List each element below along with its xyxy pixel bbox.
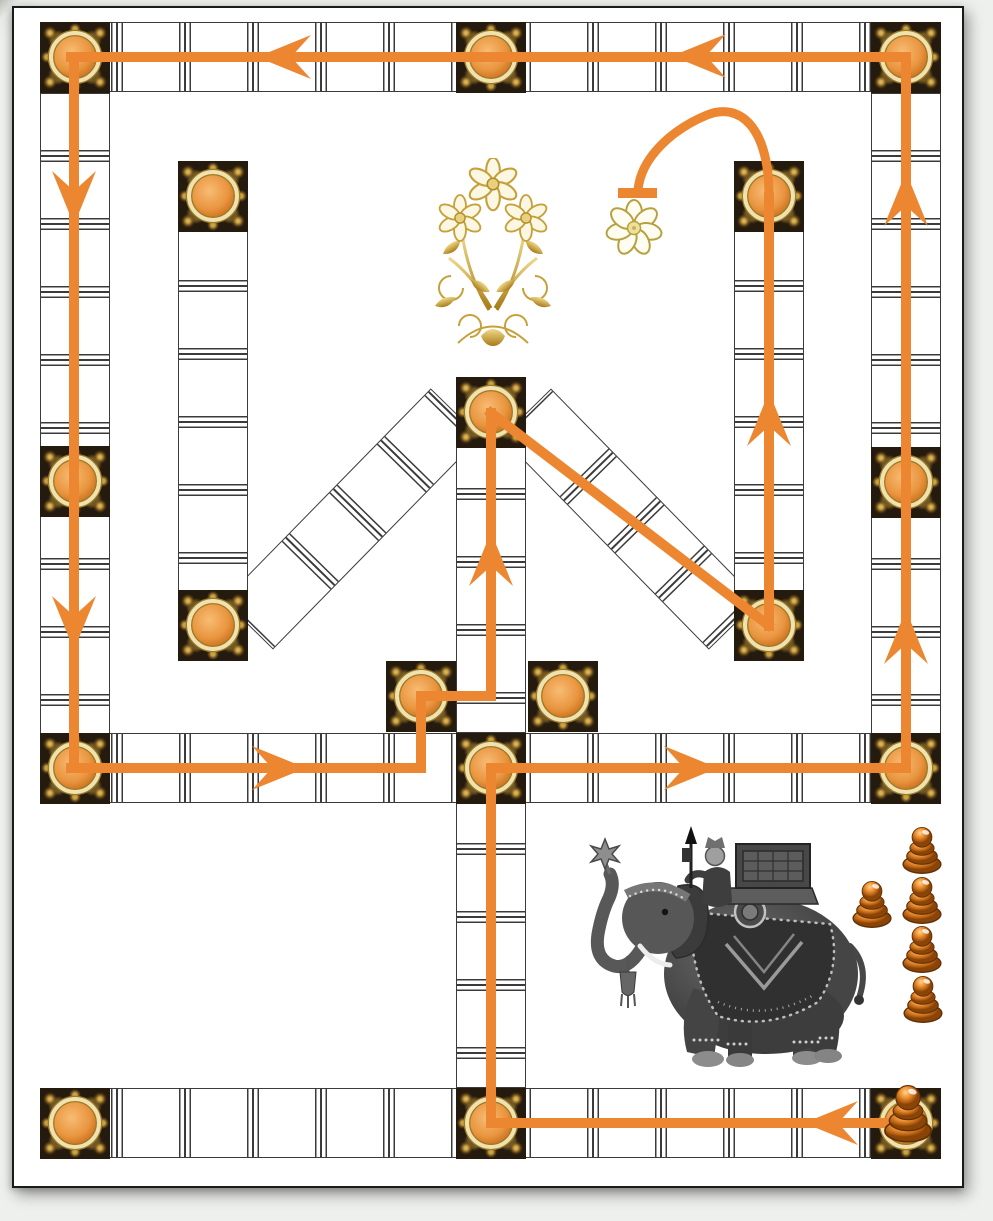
golden-bouquet-ornament [413, 158, 573, 353]
waypoint-tile-top-center[interactable] [456, 22, 526, 93]
waypoint-tile-middle-row-center[interactable] [456, 733, 526, 804]
waypoint-tile-inner-left-bottom[interactable] [178, 590, 248, 661]
waypoint-tile-right-middle[interactable] [871, 447, 941, 518]
waypoint-tile-small-right[interactable] [528, 661, 598, 732]
waypoint-tile-small-left[interactable] [386, 661, 456, 732]
track-right-column [871, 22, 941, 803]
waypoint-tile-bottom-left-corner[interactable] [40, 1088, 110, 1159]
waypoint-tile-left-middle[interactable] [40, 446, 110, 517]
war-elephant-illustration [578, 826, 878, 1074]
board-game-screenshot: { "board": { "name": "elephant-race-boar… [0, 0, 993, 1221]
track-left-column [40, 22, 110, 803]
waypoint-tile-bottom-right-corner-start[interactable] [871, 1088, 941, 1159]
waypoint-tile-inner-right-top[interactable] [734, 161, 804, 232]
track-inner-left-column [178, 161, 248, 661]
waypoint-tile-right-middle-row[interactable] [871, 733, 941, 804]
waypoint-tile-center-peak[interactable] [456, 377, 526, 448]
track-center-lower-column [456, 803, 526, 1088]
waypoint-tile-bottom-center[interactable] [456, 1088, 526, 1159]
waypoint-tile-inner-right-bottom[interactable] [734, 590, 804, 661]
waypoint-tile-left-middle-row[interactable] [40, 733, 110, 804]
waypoint-tile-inner-left-top[interactable] [178, 161, 248, 232]
track-inner-right-column [734, 161, 804, 661]
goal-flower [605, 198, 663, 256]
waypoint-tile-top-left-corner[interactable] [40, 22, 110, 93]
waypoint-tile-top-right-corner[interactable] [871, 22, 941, 93]
